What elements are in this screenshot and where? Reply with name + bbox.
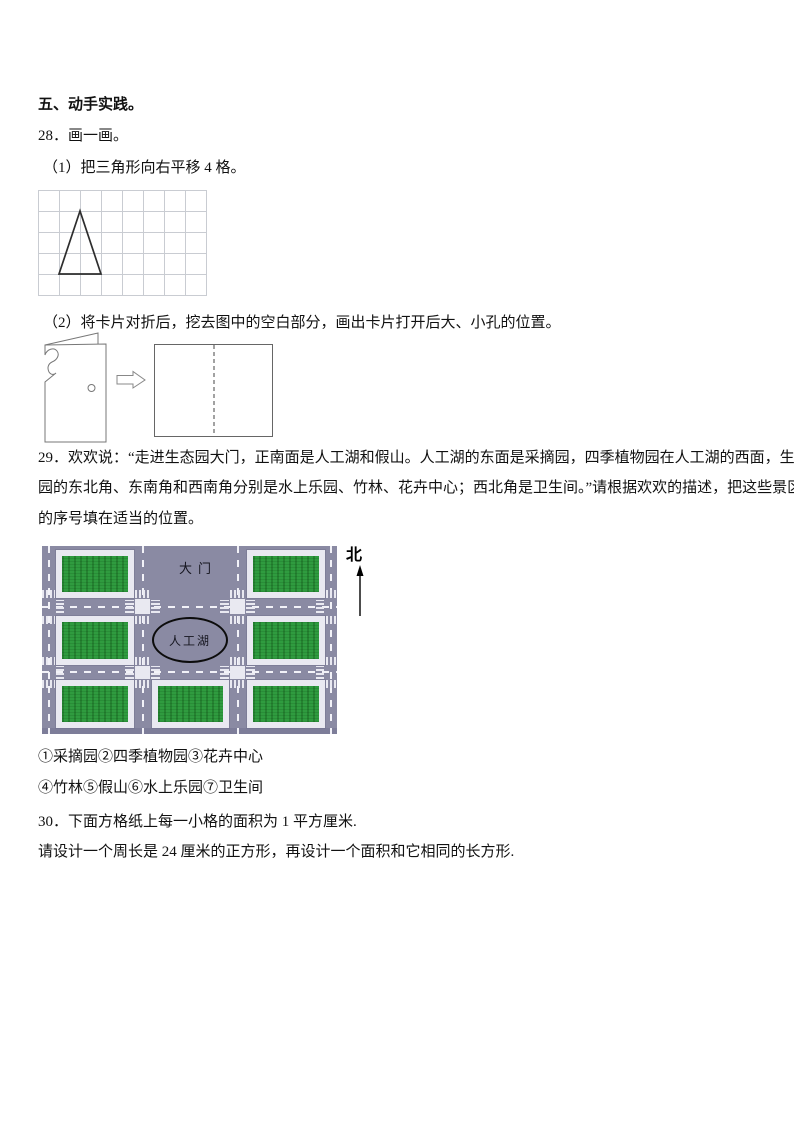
park-block-w[interactable] xyxy=(56,616,134,665)
arrow-right-icon xyxy=(117,372,145,389)
legend-line2: ④竹林⑤假山⑥水上乐园⑦卫生间 xyxy=(38,779,263,797)
park-block-sw[interactable] xyxy=(56,680,134,728)
crosswalk xyxy=(220,666,229,679)
crosswalk xyxy=(42,680,55,688)
crosswalk xyxy=(42,657,55,665)
crosswalk xyxy=(56,666,64,679)
crosswalk xyxy=(246,666,255,679)
lake-label: 人工湖 xyxy=(169,632,211,649)
crosswalk xyxy=(326,657,337,665)
q28-title: 28．画一画。 xyxy=(38,127,128,145)
road-centerline xyxy=(330,546,332,734)
crosswalk xyxy=(316,666,324,679)
crosswalk xyxy=(125,666,134,679)
crosswalk xyxy=(326,680,337,688)
q29-text-line2: 园的东北角、东南角和西南角分别是水上乐园、竹林、花卉中心；西北角是卫生间。”请根… xyxy=(38,479,794,497)
intersection xyxy=(135,599,150,614)
card-flap xyxy=(45,333,98,345)
worksheet-page: 五、动手实践。 28．画一画。 （1）把三角形向右平移 4 格。 （2）将卡片对… xyxy=(0,0,794,1123)
crosswalk xyxy=(135,590,150,598)
intersection xyxy=(230,599,245,614)
crosswalk xyxy=(246,600,255,613)
road-centerline xyxy=(42,671,337,673)
crosswalk xyxy=(326,590,337,598)
crosswalk xyxy=(151,666,160,679)
park-block-s[interactable] xyxy=(152,680,229,728)
road-centerline xyxy=(42,606,337,608)
park-block-ne[interactable] xyxy=(247,550,325,598)
crosswalk xyxy=(230,590,245,598)
park-block-e[interactable] xyxy=(247,616,325,665)
map-bottom-edge xyxy=(42,728,337,734)
north-label: 北 xyxy=(346,541,362,565)
q29-text-line1: 29．欢欢说：“走进生态园大门，正南面是人工湖和假山。人工湖的东面是采摘园，四季… xyxy=(38,449,794,467)
road-centerline xyxy=(48,546,50,734)
crosswalk xyxy=(135,616,150,624)
road-centerline xyxy=(142,546,144,734)
crosswalk xyxy=(220,600,229,613)
crosswalk xyxy=(125,600,134,613)
park-block-nw[interactable] xyxy=(56,550,134,598)
card-fold-figure xyxy=(40,330,280,445)
road-centerline xyxy=(237,546,239,734)
crosswalk xyxy=(42,616,55,624)
crosswalk xyxy=(42,590,55,598)
folded-card xyxy=(45,344,106,442)
q30-line1: 30．下面方格纸上每一小格的面积为 1 平方厘米. xyxy=(38,813,357,831)
q29-text-line3: 的序号填在适当的位置。 xyxy=(38,510,203,528)
park-block-se[interactable] xyxy=(247,680,325,728)
north-arrow-icon xyxy=(351,563,369,619)
crosswalk xyxy=(230,616,245,624)
crosswalk xyxy=(151,600,160,613)
crosswalk xyxy=(56,600,64,613)
legend-line1: ①采摘园②四季植物园③花卉中心 xyxy=(38,748,263,766)
intersection xyxy=(135,666,150,679)
crosswalk xyxy=(135,680,150,688)
lake-ellipse[interactable]: 人工湖 xyxy=(152,617,228,663)
q28-part1-text: （1）把三角形向右平移 4 格。 xyxy=(43,159,246,177)
section-title: 五、动手实践。 xyxy=(38,96,143,114)
crosswalk xyxy=(230,680,245,688)
eco-park-map[interactable]: 大门 人工湖 xyxy=(42,546,337,734)
crosswalk xyxy=(135,657,150,665)
triangle-figure xyxy=(38,190,207,296)
intersection xyxy=(230,666,245,679)
gate-label: 大门 xyxy=(179,558,217,577)
crosswalk xyxy=(230,657,245,665)
translation-grid[interactable] xyxy=(38,190,207,296)
crosswalk xyxy=(326,616,337,624)
q30-line2: 请设计一个周长是 24 厘米的正方形，再设计一个面积和它相同的长方形. xyxy=(38,843,514,861)
crosswalk xyxy=(316,600,324,613)
